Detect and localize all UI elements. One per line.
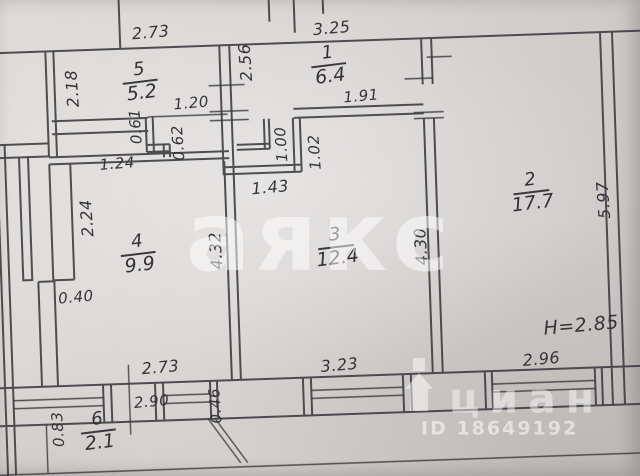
dim-2-18: 2.18 <box>63 69 82 108</box>
dim-1-91: 1.91 <box>343 87 380 105</box>
dim-top-2-73: 2.73 <box>131 23 170 42</box>
floor-plan-photo: 16.4 217.7 312.4 49.9 55.2 62.1 2.73 3.2… <box>0 0 640 476</box>
dim-0-40: 0.40 <box>58 289 95 307</box>
listing-id-watermark: ID 18649192 <box>421 420 578 439</box>
room-area: 2.1 <box>84 431 116 454</box>
portal-watermark: циан <box>449 379 604 420</box>
room-label-2: 217.7 <box>508 169 555 217</box>
room-label-1: 16.4 <box>309 42 349 89</box>
room-area: 5.2 <box>126 82 158 105</box>
dim-bottom-3-23: 3.23 <box>320 356 359 375</box>
room-label-4: 49.9 <box>118 231 158 278</box>
dim-0-83: 0.83 <box>50 411 67 447</box>
dim-0-61: 0.61 <box>127 108 144 144</box>
dim-top-3-25: 3.25 <box>312 19 351 38</box>
dim-0-62: 0.62 <box>170 125 187 161</box>
dim-1-02: 1.02 <box>306 134 323 170</box>
dim-2-24: 2.24 <box>78 199 97 238</box>
dim-2-56: 2.56 <box>237 43 256 82</box>
dim-1-24: 1.24 <box>99 155 136 173</box>
room-label-6: 62.1 <box>78 408 118 455</box>
dim-2-90: 2.90 <box>133 393 170 411</box>
dim-0-46: 0.46 <box>207 388 224 424</box>
dim-5-97: 5.97 <box>595 181 614 220</box>
room-area: 6.4 <box>314 65 346 88</box>
cian-house-icon <box>404 358 434 414</box>
room-area: 9.9 <box>124 254 156 277</box>
dim-bottom-2-73: 2.73 <box>141 358 180 377</box>
dim-1-00: 1.00 <box>273 126 290 162</box>
dim-1-20: 1.20 <box>173 94 210 112</box>
agency-watermark: аякс <box>186 189 454 285</box>
dim-bottom-2-96: 2.96 <box>522 350 561 369</box>
room-label-5: 55.2 <box>120 59 160 106</box>
